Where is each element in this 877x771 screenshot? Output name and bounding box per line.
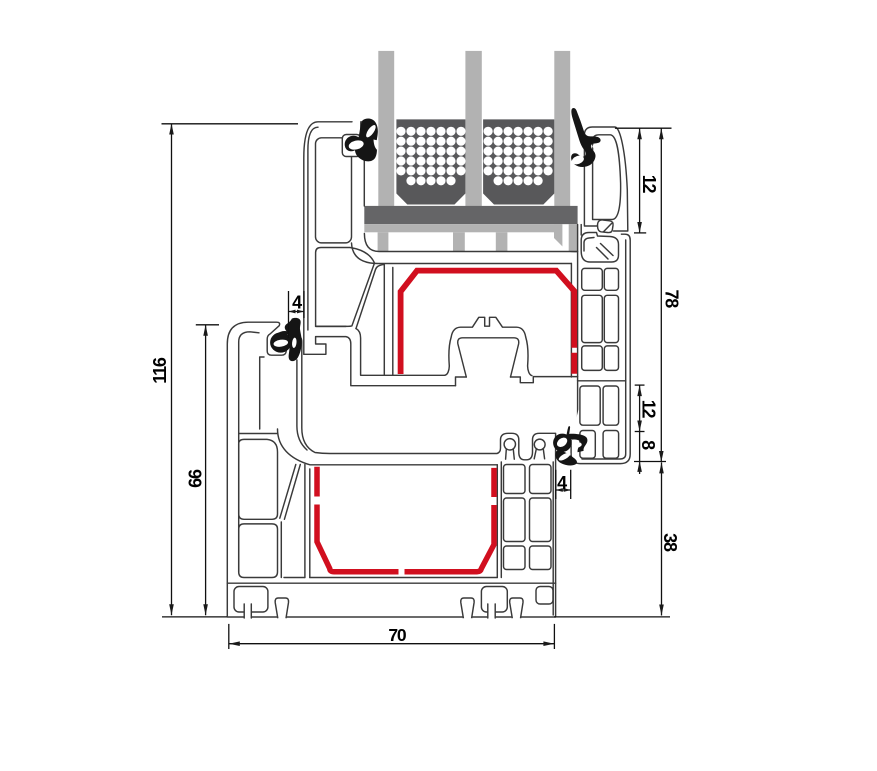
- svg-text:12: 12: [639, 175, 659, 194]
- svg-text:38: 38: [660, 533, 680, 552]
- svg-text:8: 8: [638, 440, 658, 450]
- svg-text:4: 4: [557, 473, 567, 493]
- svg-text:78: 78: [662, 289, 682, 308]
- svg-text:4: 4: [292, 293, 302, 313]
- svg-text:12: 12: [639, 400, 659, 419]
- svg-text:70: 70: [388, 625, 407, 645]
- svg-text:66: 66: [186, 469, 206, 488]
- svg-text:116: 116: [150, 357, 170, 384]
